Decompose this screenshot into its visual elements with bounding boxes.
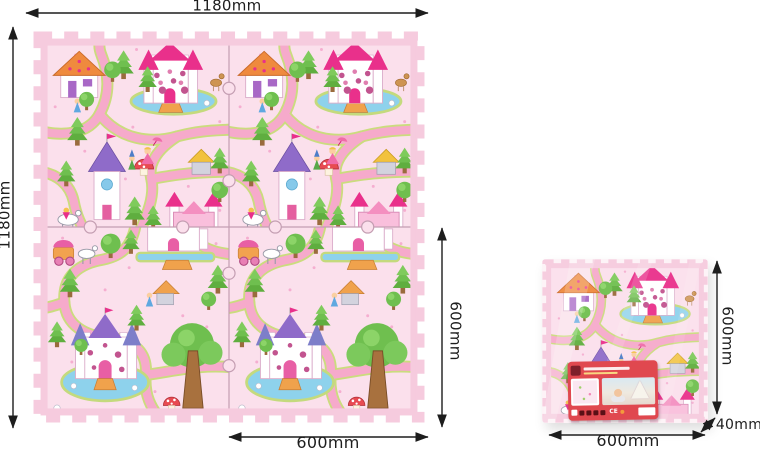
mat-thumbnail [571, 378, 599, 405]
assembled-mat-image [28, 26, 430, 428]
label-title-text [584, 366, 655, 374]
package-thickness-dimension: 40mm [716, 418, 760, 432]
tile-height-dimension: 600mm [448, 301, 463, 360]
product-dimension-diagram: CE 1180mm 1180mm 600mm 600mm 600mm 600mm… [0, 0, 760, 449]
checkbox-mark [571, 410, 577, 416]
label-footer: CE [571, 406, 655, 417]
mat-width-dimension: 1180mm [192, 0, 261, 14]
mat-illustration [28, 26, 430, 428]
brand-logo [571, 366, 581, 376]
label-body [571, 377, 655, 405]
product-label: CE [567, 360, 658, 421]
package-height-dimension: 600mm [720, 306, 735, 365]
packaged-tile-image: CE [542, 259, 708, 423]
mat-height-dimension: 1180mm [0, 180, 13, 249]
ce-mark: CE [609, 409, 618, 415]
barcode-box [638, 407, 655, 415]
tile-width-dimension: 600mm [296, 435, 359, 449]
label-header [571, 363, 655, 376]
teepee-illustration [631, 380, 649, 398]
package-width-dimension: 600mm [596, 433, 659, 449]
baby-photo [602, 377, 655, 405]
